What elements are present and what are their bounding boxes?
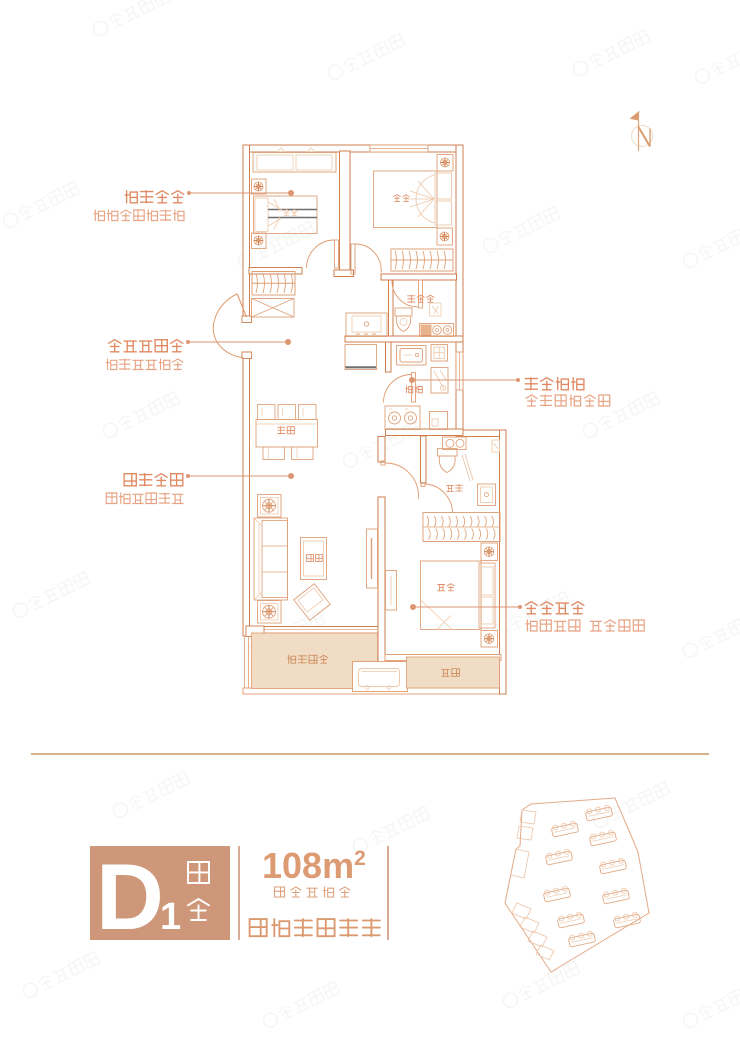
- svg-text:D: D: [96, 844, 164, 949]
- svg-text:1: 1: [160, 896, 181, 938]
- svg-text:108m2: 108m2: [262, 845, 366, 886]
